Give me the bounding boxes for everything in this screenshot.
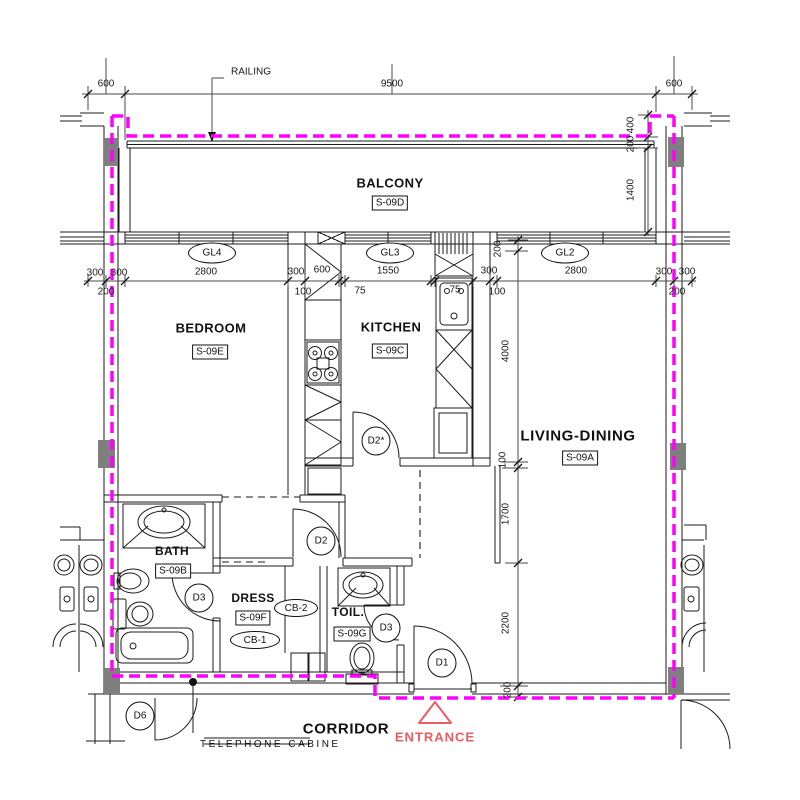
- floor-plan-canvas: RAILING BALCONY S-09D BEDROOM S-09E KITC…: [0, 0, 800, 800]
- room-label-bedroom: BEDROOM: [176, 321, 247, 336]
- dim-600-cabinet: 600: [314, 265, 331, 276]
- dim-100-b: 100: [489, 287, 506, 298]
- room-label-dress: DRESS: [231, 591, 274, 605]
- dim-top-600-left: 600: [98, 79, 115, 90]
- duct-shaft: [318, 232, 345, 244]
- dim-200-left: 200: [98, 287, 115, 298]
- dim-200-right: 200: [669, 287, 686, 298]
- bathtub: [116, 628, 193, 663]
- entrance-triangle: [419, 702, 451, 723]
- kitchen-counter: [436, 330, 472, 408]
- window-tag-gl4: GL4: [188, 243, 236, 264]
- dim-v-100: 100: [498, 452, 509, 469]
- telephone-cabinet-label-clipped: TELEPHONE CABINET: [200, 739, 340, 747]
- bath-vanity: [123, 504, 205, 548]
- cabinet-tag-cb2: CB-2: [274, 599, 318, 617]
- bidet: [114, 569, 149, 593]
- room-tag-toilet: S-09G: [334, 627, 371, 642]
- dim-300-c: 300: [288, 267, 305, 278]
- dim-1550-kitchen: 1550: [377, 266, 399, 277]
- dim-top-9500: 9500: [381, 79, 403, 90]
- room-tag-balcony: S-09D: [372, 196, 408, 211]
- door-tag-d3-bath: D3: [185, 584, 214, 613]
- door-tag-d3-toilet: D3: [372, 614, 401, 643]
- dim-300-f: 300: [679, 267, 696, 278]
- room-label-living-dining: LIVING-DINING: [520, 428, 635, 445]
- columns: [98, 137, 686, 694]
- sink-duct: [435, 232, 473, 276]
- dim-2800-living: 2800: [565, 266, 587, 277]
- dim-v-200-bottom: 200: [503, 682, 514, 699]
- dim-75-b: 75: [449, 285, 460, 296]
- room-label-kitchen: KITCHEN: [361, 320, 422, 335]
- dim-300-a: 300: [87, 268, 104, 279]
- railing-lines: [127, 141, 654, 148]
- bath-fixtures: [113, 504, 205, 663]
- dim-v-2200: 2200: [501, 612, 512, 634]
- window-tag-gl3: GL3: [366, 243, 414, 264]
- corridor-label: CORRIDOR: [303, 721, 389, 738]
- dim-2800-bedroom: 2800: [195, 267, 217, 278]
- leader-dot: [189, 678, 197, 686]
- kitchen-cabinets: [305, 244, 341, 465]
- plan-linework: [0, 0, 800, 800]
- dim-75-a: 75: [354, 286, 365, 297]
- door-d6-arc: [155, 698, 197, 740]
- dim-v-1700: 1700: [501, 503, 512, 525]
- dim-100-a: 100: [295, 287, 312, 298]
- hall-cabinet: [308, 468, 341, 494]
- dim-top-600-right: 600: [666, 79, 683, 90]
- railing-label: RAILING: [231, 67, 271, 78]
- dim-v-1400: 1400: [626, 179, 637, 201]
- entrance-label: ENTRANCE: [395, 730, 475, 745]
- room-tag-living-dining: S-09A: [562, 451, 598, 466]
- dim-300-b: 300: [111, 268, 128, 279]
- door-tag-d2star: D2*: [362, 427, 391, 456]
- door-tag-d1: D1: [428, 649, 457, 678]
- door-tag-d6: D6: [126, 702, 155, 731]
- room-tag-kitchen: S-09C: [372, 344, 408, 359]
- room-tag-bedroom: S-09E: [192, 345, 228, 360]
- cabinet-tag-cb1: CB-1: [230, 631, 280, 649]
- door-tag-d2: D2: [307, 527, 336, 556]
- dim-300-d: 300: [481, 266, 498, 277]
- room-tag-dress: S-09F: [235, 611, 270, 626]
- dim-v-4000: 4000: [501, 340, 512, 362]
- window-tag-gl2: GL2: [541, 243, 589, 264]
- toilet-wc: [113, 599, 153, 629]
- refrigerator: [434, 408, 472, 458]
- stove: [307, 342, 339, 383]
- room-label-bath: BATH: [155, 544, 189, 558]
- dim-300-e: 300: [656, 267, 673, 278]
- toilet-vanity: [338, 568, 390, 606]
- room-tag-bath: S-09B: [155, 564, 191, 579]
- doors: [155, 412, 472, 740]
- room-label-toilet: TOIL.: [332, 605, 364, 619]
- room-label-balcony: BALCONY: [356, 176, 423, 191]
- dim-v-200-balcony: 200: [626, 136, 637, 153]
- dim-v-400: 400: [626, 117, 637, 134]
- toilet-wc-2: [346, 643, 378, 684]
- adjacent-entry-door: [681, 700, 730, 749]
- dim-v-200-top: 200: [493, 241, 504, 258]
